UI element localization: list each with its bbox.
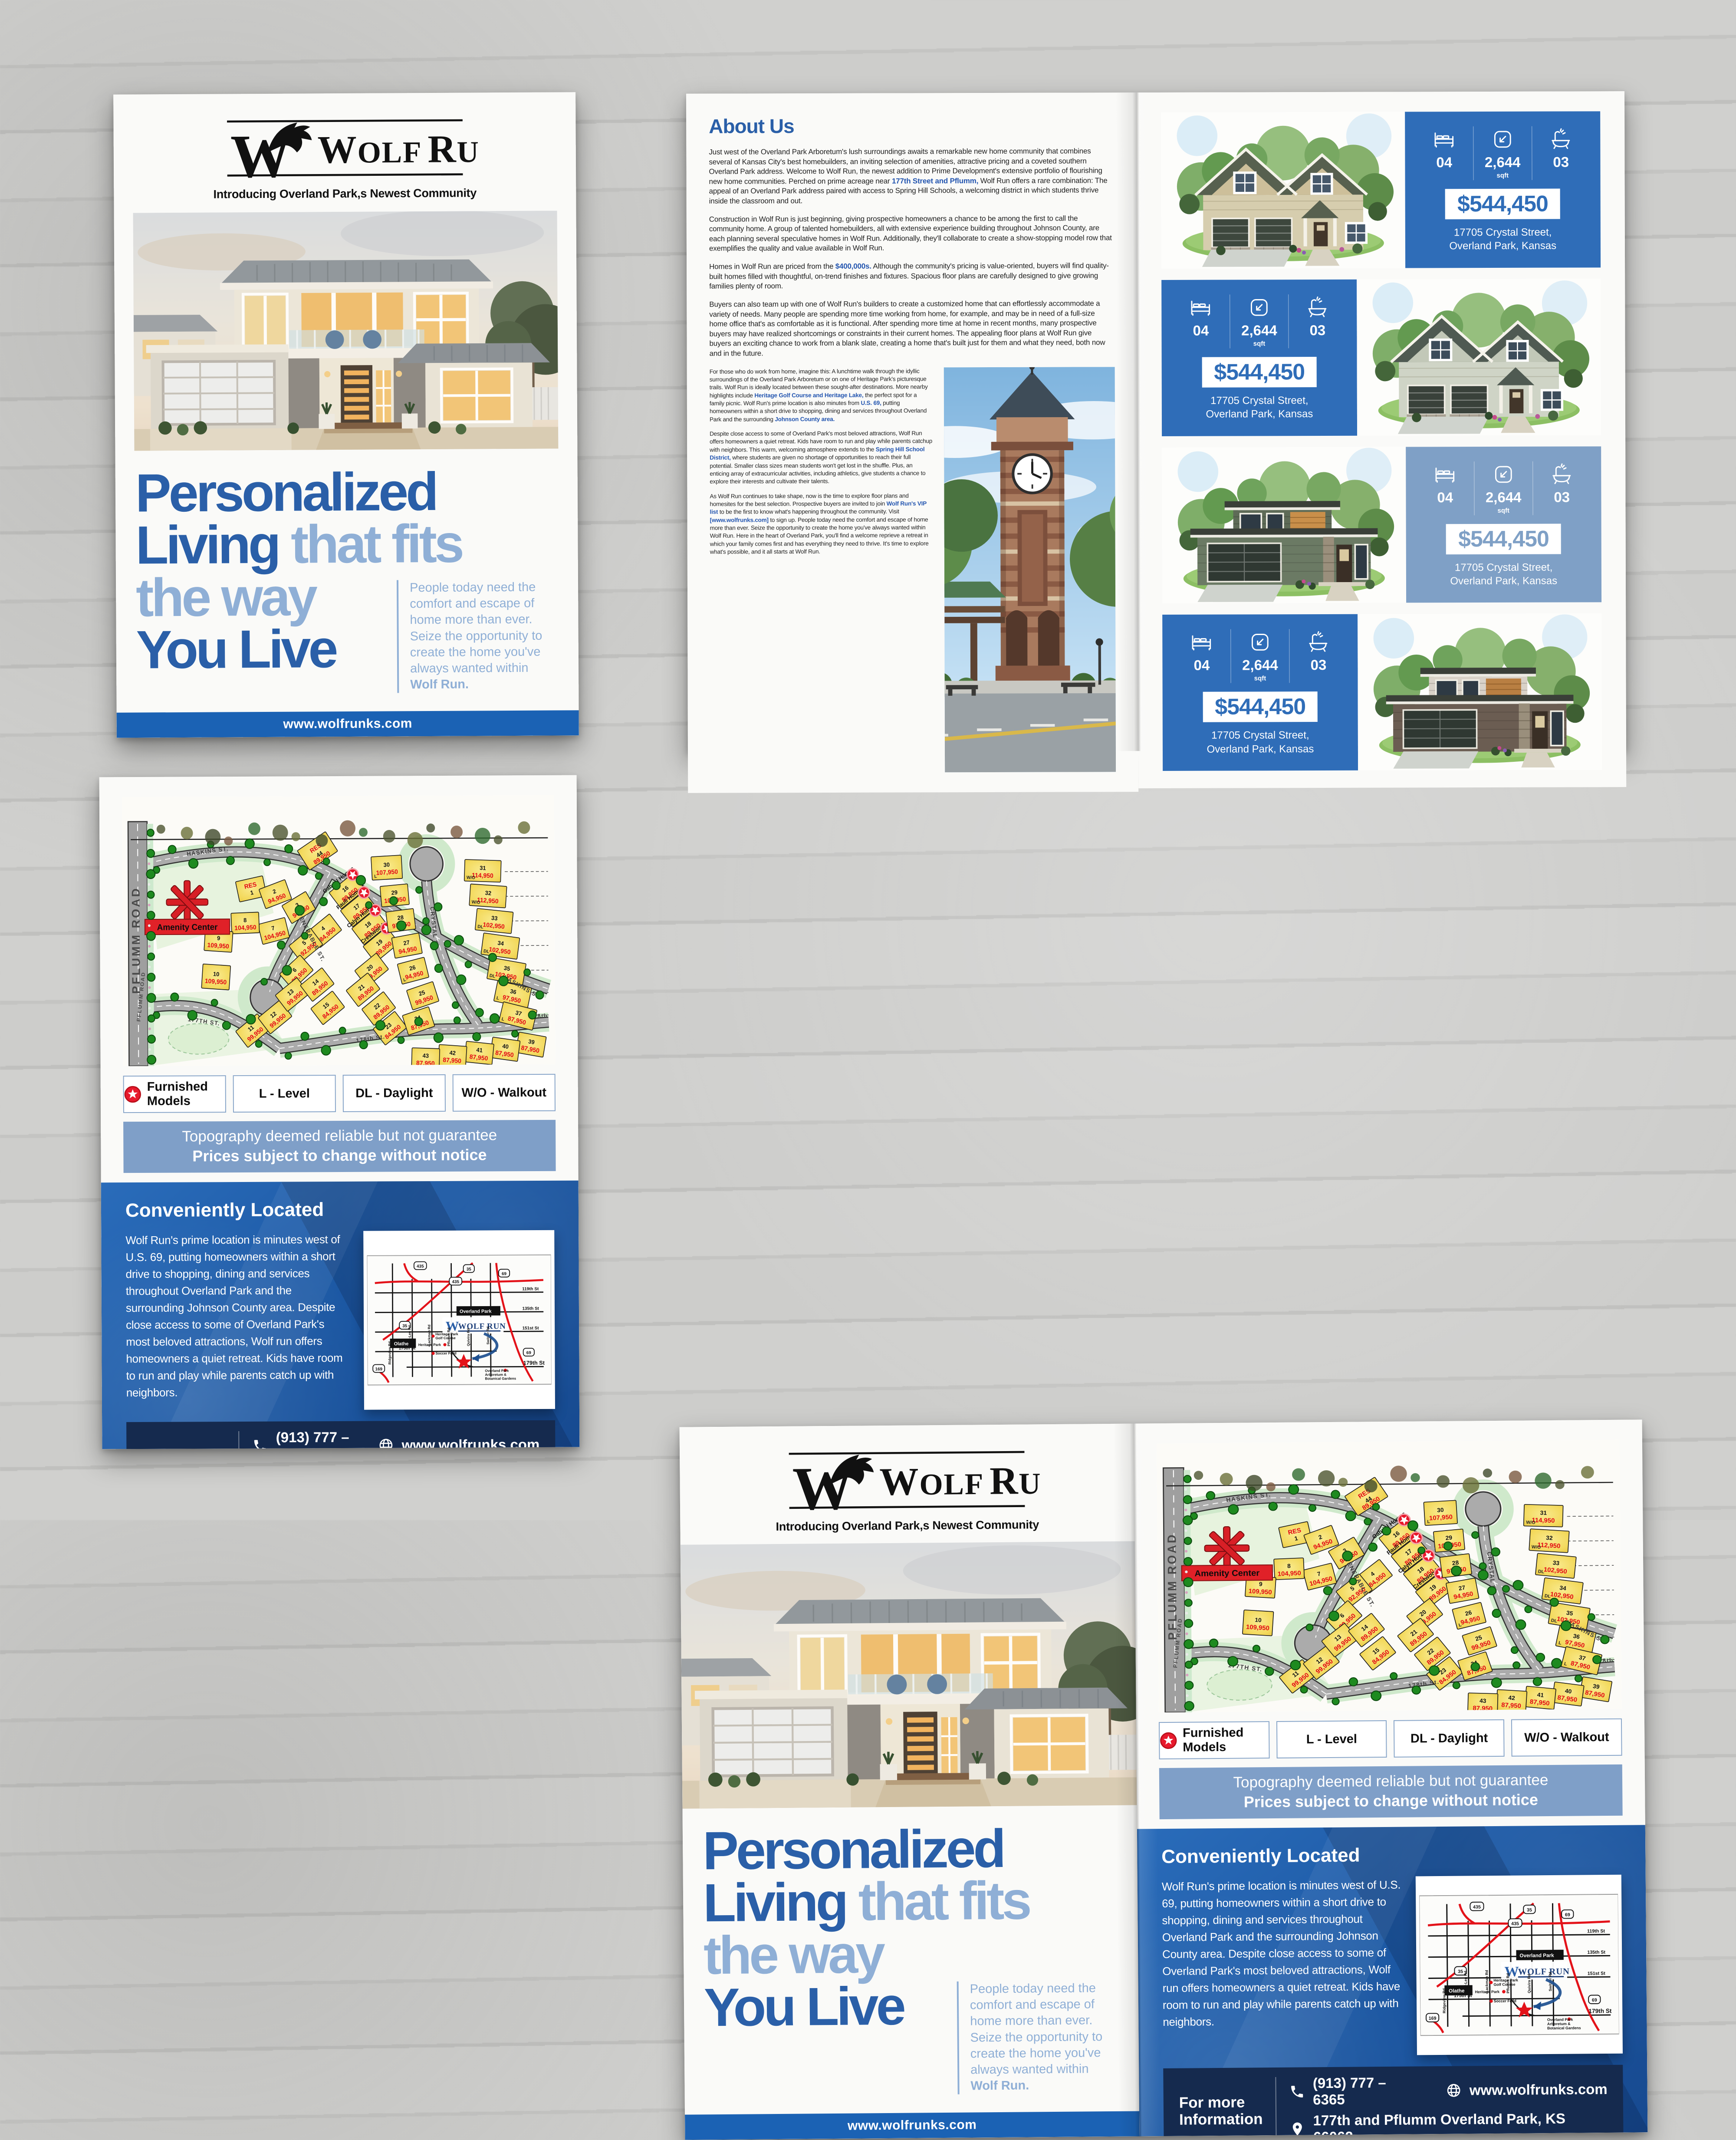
tree-icon [1555, 1480, 1565, 1489]
tree-icon [1575, 1675, 1582, 1682]
conveniently-located-section: Conveniently Located Wolf Run's prime lo… [1137, 1825, 1648, 2136]
svg-text:DL: DL [1551, 1618, 1558, 1624]
house-illustration [1161, 112, 1405, 268]
phone-number: (913) 777 – 6365 [1313, 2074, 1421, 2108]
about-paragraph: Homes in Wolf Run are priced from the $4… [709, 261, 1115, 291]
tree-icon [1184, 1495, 1192, 1504]
headline-line-2: Living that fits [703, 1874, 1118, 1929]
map-lot: 34102,950DL [1542, 1578, 1583, 1604]
tree-icon [223, 1021, 230, 1030]
tree-icon [524, 969, 530, 976]
shrub-icon [1184, 1529, 1187, 1532]
sqft-icon [1491, 128, 1514, 151]
svg-text:9: 9 [217, 935, 220, 942]
located-title: Conveniently Located [1161, 1843, 1621, 1868]
legend-item: DL - Daylight [343, 1074, 446, 1112]
tree-icon [452, 1002, 459, 1009]
shrub-icon [148, 842, 150, 844]
tree-icon [1329, 1611, 1339, 1621]
tree-icon [246, 1014, 255, 1024]
legend-item: L - Level [233, 1075, 336, 1113]
tree-icon [434, 1033, 443, 1042]
brochure-site-map-page: RES1294,950394,950484,950592,950689,9507… [99, 775, 580, 1449]
tree-icon [423, 918, 429, 925]
map-lot: 4287,950 [1496, 1689, 1527, 1712]
svg-text:40: 40 [1565, 1688, 1572, 1695]
tree-icon [398, 1037, 404, 1044]
tree-icon [1290, 1660, 1300, 1670]
svg-text:10: 10 [1255, 1617, 1262, 1623]
listing-card: 04 2,644sqft 03 $544,450 17705 Crystal S… [1161, 111, 1601, 268]
location-minimap [1415, 1875, 1623, 2055]
headline-line-1: Personalized [703, 1822, 1118, 1877]
tree-icon [416, 886, 422, 893]
shrub-icon [1185, 1570, 1187, 1573]
tree-icon [390, 897, 398, 905]
tree-icon [147, 932, 155, 941]
tree-icon [147, 993, 156, 1002]
tree-icon [147, 1055, 156, 1064]
house-illustration [1358, 614, 1602, 770]
site-plan-map: RES1294,950394,950484,950592,950689,9507… [1157, 1440, 1622, 1712]
tree-icon [211, 999, 218, 1006]
shrub-icon [1185, 1550, 1187, 1552]
tree-icon [1184, 1475, 1191, 1483]
svg-text:DL: DL [477, 924, 483, 930]
tree-icon [529, 1011, 536, 1019]
sqft-stat: 2,644sqft [1473, 126, 1532, 180]
tree-icon [1185, 1599, 1192, 1607]
map-lot: 3987,950 [516, 1032, 546, 1057]
tree-icon [359, 828, 368, 837]
svg-text:87,950: 87,950 [443, 1057, 462, 1065]
headline-line-3: the way [704, 1926, 1118, 1982]
tree-icon [1265, 1667, 1274, 1676]
site-plan-map: RES1294,950394,950484,950592,950689,9507… [122, 795, 556, 1066]
map-lot: 4187,950 [464, 1041, 494, 1065]
tree-icon [1306, 1624, 1313, 1631]
svg-text:109,950: 109,950 [1248, 1588, 1272, 1596]
tree-icon [1408, 1521, 1418, 1530]
tree-icon [1492, 1678, 1502, 1687]
cover-blurb: People today need the comfort and escape… [957, 1980, 1117, 2094]
shrub-icon [1186, 1674, 1188, 1676]
map-lot: 32112,950W/O [1529, 1529, 1569, 1553]
tree-icon [1309, 1505, 1316, 1511]
tree-icon [536, 991, 543, 999]
svg-text:33: 33 [1552, 1560, 1560, 1567]
globe-icon [1446, 2083, 1462, 2098]
tree-icon [376, 1021, 385, 1030]
map-lot: 10109,950 [201, 964, 230, 990]
tree-icon [1410, 1473, 1420, 1482]
tree-icon [1513, 1580, 1523, 1590]
tree-icon [1269, 1502, 1277, 1511]
baths-stat: 03 [1289, 629, 1348, 683]
tree-icon [518, 821, 530, 834]
tree-icon [1364, 1480, 1378, 1492]
headline-line-2: Living that fits [135, 517, 558, 572]
tree-icon [323, 858, 330, 865]
tree-icon [277, 941, 285, 949]
tree-icon [316, 872, 322, 879]
tree-icon [1184, 1557, 1192, 1566]
svg-text:39: 39 [528, 1038, 535, 1046]
tree-icon [298, 866, 307, 875]
tree-icon [473, 1033, 480, 1041]
svg-text:43: 43 [422, 1052, 429, 1059]
legend-item: L - Level [1276, 1720, 1387, 1758]
tree-icon [1289, 1485, 1299, 1494]
shrub-icon [148, 883, 150, 886]
brochure-inside-spread: About Us Just west of the Overland Park … [686, 91, 1626, 752]
info-label: For moreInformation [1179, 2094, 1263, 2128]
home-listings-page: 04 2,644sqft 03 $544,450 17705 Crystal S… [1137, 91, 1626, 788]
map-lot: 31114,950W/O [1524, 1505, 1563, 1527]
svg-text:9: 9 [1259, 1581, 1263, 1587]
svg-text:30: 30 [383, 861, 390, 868]
tree-icon [1184, 1620, 1193, 1628]
price-badge: $544,450 [1202, 357, 1317, 388]
map-lot: 4387,950 [411, 1048, 440, 1066]
tree-icon [426, 823, 435, 833]
tree-icon [1511, 1646, 1518, 1653]
tree-icon [1429, 1666, 1439, 1675]
tree-icon [1513, 1662, 1520, 1669]
website: www.wolfrunks.com [401, 1436, 539, 1449]
tree-icon [189, 859, 198, 868]
tree-icon [431, 942, 438, 950]
tree-icon [475, 828, 490, 844]
tree-icon [1184, 1577, 1193, 1587]
svg-text:34: 34 [1559, 1584, 1567, 1592]
location-minimap [363, 1230, 555, 1410]
tree-icon [1552, 1659, 1562, 1668]
tree-icon [1453, 1682, 1460, 1689]
map-lot: 33102,950DL [475, 909, 513, 934]
tree-icon [147, 973, 155, 981]
svg-text:10: 10 [213, 971, 220, 978]
website-bar: www.wolfrunks.com [685, 2111, 1139, 2140]
beds-stat: 04 [1416, 461, 1474, 515]
tree-icon [171, 993, 178, 1001]
tree-icon [147, 911, 155, 919]
svg-text:31: 31 [480, 865, 486, 872]
shrub-icon [1184, 1488, 1187, 1491]
tree-icon [282, 965, 291, 975]
sqft-icon [1248, 296, 1270, 319]
about-paragraph: Despite close access to some of Overland… [710, 429, 933, 486]
svg-text:27: 27 [403, 939, 410, 947]
about-paragraph: Buyers can also team up with one of Wolf… [709, 299, 1115, 359]
svg-text:32: 32 [1546, 1534, 1553, 1541]
tree-icon [1463, 1477, 1480, 1494]
tree-icon [285, 1053, 292, 1060]
conveniently-located-section: Conveniently Located Wolf Run's prime lo… [101, 1181, 580, 1449]
tree-icon [499, 976, 508, 986]
tree-icon [148, 891, 155, 899]
clock-tower-photo [944, 367, 1116, 772]
svg-text:31: 31 [1540, 1510, 1547, 1516]
listing-card: 04 2,644sqft 03 $544,450 17705 Crystal S… [1162, 614, 1602, 771]
tree-icon [408, 832, 423, 848]
svg-text:41: 41 [476, 1047, 483, 1054]
furnished-model-star-icon [1160, 1732, 1177, 1749]
disclaimer-bar: Topography deemed reliable but not guara… [1159, 1765, 1623, 1819]
tree-icon [434, 903, 442, 911]
map-lot: 30107,950L [1424, 1500, 1457, 1525]
tree-icon [1593, 1656, 1601, 1664]
shrub-icon [148, 1048, 151, 1051]
tree-icon [1349, 1578, 1356, 1585]
tree-icon [1349, 1678, 1358, 1686]
tree-icon [489, 953, 496, 961]
svg-text:41: 41 [1537, 1692, 1544, 1699]
tree-icon [1185, 1661, 1193, 1669]
tree-icon [1342, 1551, 1352, 1561]
wolf-run-logo [772, 1446, 1042, 1517]
located-body: Wolf Run's prime location is minutes wes… [125, 1231, 349, 1411]
tree-icon [1206, 1491, 1215, 1500]
tree-icon [435, 964, 443, 972]
website-bar: www.wolfrunks.com [117, 710, 579, 738]
pin-icon [1290, 2121, 1305, 2136]
plat-map-svg: RES1294,950394,950484,950592,950689,9507… [1157, 1440, 1622, 1712]
tree-icon [188, 1011, 197, 1020]
shrub-icon [1185, 1612, 1188, 1614]
bath-icon [1549, 128, 1572, 151]
sqft-icon [1492, 463, 1515, 486]
svg-text:W/O: W/O [1526, 1520, 1535, 1525]
cover-house-photo [681, 1541, 1137, 1809]
svg-text:32: 32 [485, 889, 491, 896]
map-lot: 4287,950 [438, 1044, 467, 1066]
located-body: Wolf Run's prime location is minutes wes… [1162, 1877, 1402, 2057]
svg-text:87,950: 87,950 [1501, 1702, 1522, 1709]
located-title: Conveniently Located [125, 1198, 554, 1221]
price-badge: $544,450 [1445, 189, 1560, 220]
divider [239, 1431, 240, 1449]
tree-icon [1437, 1475, 1450, 1488]
tree-icon [1472, 1531, 1479, 1538]
cover-tagline: Introducing Overland Park,s Newest Commu… [114, 186, 576, 202]
tree-icon [321, 1046, 330, 1055]
tree-icon [148, 1035, 155, 1044]
phone-icon [253, 1438, 268, 1449]
tree-icon [365, 902, 372, 909]
tree-icon [1228, 1505, 1238, 1514]
legend-item: W/O - Walkout [453, 1074, 556, 1112]
beds-stat: 04 [1173, 629, 1231, 683]
shrub-icon [148, 945, 151, 948]
tree-icon [1331, 1490, 1340, 1498]
tree-icon [292, 832, 300, 841]
tree-icon [1372, 1504, 1379, 1511]
about-paragraph: For those who do work from home, imagine… [710, 367, 933, 424]
svg-text:87,950: 87,950 [416, 1060, 435, 1066]
tree-icon [1324, 1587, 1332, 1595]
cover-house-photo [133, 211, 559, 451]
beds-stat: 04 [1415, 126, 1473, 180]
tree-icon [1581, 1466, 1594, 1478]
map-lot: 8104,950 [231, 912, 260, 934]
tree-icon [245, 839, 254, 849]
tree-icon [168, 846, 176, 854]
tree-icon [1228, 1656, 1238, 1666]
shrub-icon [148, 1027, 151, 1030]
tree-icon [454, 1017, 460, 1024]
listing-address: 17705 Crystal Street,Overland Park, Kans… [1207, 728, 1314, 756]
about-title: About Us [709, 113, 1114, 138]
tree-icon [1535, 1472, 1552, 1489]
tree-icon [1345, 1511, 1355, 1521]
tree-icon [1479, 1563, 1486, 1570]
price-badge: $544,450 [1203, 691, 1318, 722]
tree-icon [1292, 1468, 1305, 1481]
bath-icon [1307, 631, 1330, 653]
sqft-stat: 2,644sqft [1230, 629, 1289, 683]
tree-icon [256, 1040, 262, 1047]
tree-icon [148, 1015, 155, 1022]
front-cover-page: Introducing Overland Park,s Newest Commu… [680, 1424, 1140, 2140]
legend-item: W/O - Walkout [1511, 1719, 1622, 1757]
tree-icon [147, 849, 155, 858]
svg-text:87,950: 87,950 [1473, 1705, 1493, 1712]
tree-icon [383, 830, 395, 843]
shrub-icon [1185, 1591, 1187, 1594]
tree-icon [494, 835, 503, 844]
tree-icon [1184, 1640, 1193, 1649]
listing-address: 17705 Crystal Street,Overland Park, Kans… [1450, 560, 1557, 588]
tree-icon [1210, 1639, 1218, 1647]
tree-icon [1509, 1471, 1522, 1483]
svg-text:27: 27 [1458, 1584, 1466, 1592]
tree-icon [319, 898, 327, 906]
tree-icon [454, 935, 464, 945]
shrub-icon [148, 1007, 151, 1009]
tree-icon [1471, 1663, 1480, 1671]
tree-icon [1588, 1613, 1595, 1620]
svg-text:29: 29 [1445, 1534, 1453, 1541]
headline-line-1: Personalized [135, 465, 558, 519]
website: www.wolfrunks.com [1470, 2081, 1608, 2098]
svg-text:104,950: 104,950 [1277, 1570, 1301, 1578]
tree-icon [1601, 1636, 1609, 1644]
tree-icon [302, 932, 308, 939]
map-lot: 4087,950 [1552, 1682, 1584, 1706]
tree-icon [1220, 1473, 1233, 1485]
legend-item: Furnished Models [1159, 1721, 1269, 1759]
disclaimer-bar: Topography deemed reliable but not guara… [123, 1120, 556, 1173]
svg-text:107,950: 107,950 [1429, 1514, 1453, 1522]
baths-stat: 03 [1288, 294, 1347, 348]
svg-text:8: 8 [243, 917, 247, 924]
tree-icon [1478, 1570, 1488, 1580]
furnished-model-star-icon [124, 1086, 141, 1103]
street-address: 177th and Pflumm Overland Park, KS 66062 [1313, 2110, 1608, 2136]
tree-icon [1533, 1677, 1542, 1686]
tree-icon [1368, 1543, 1377, 1551]
tree-icon [181, 827, 193, 840]
tree-icon [1185, 1681, 1193, 1689]
shrub-icon [148, 863, 150, 865]
svg-text:34: 34 [497, 939, 505, 947]
tree-icon [1525, 1606, 1532, 1613]
baths-stat: 03 [1532, 126, 1590, 180]
contact-info-bar: For moreInformation (913) 777 – 6365 www… [1163, 2065, 1624, 2137]
tree-icon [316, 834, 328, 847]
plat-map-svg: RES1294,950394,950484,950592,950689,9507… [122, 795, 556, 1066]
svg-text:W/O: W/O [471, 900, 480, 905]
listing-address: 17705 Crystal Street,Overland Park, Kans… [1206, 394, 1313, 421]
tree-icon [301, 1032, 309, 1040]
tree-icon [227, 856, 234, 865]
baths-stat: 03 [1532, 461, 1591, 515]
svg-text:36: 36 [510, 988, 517, 996]
tree-icon [1194, 1471, 1203, 1480]
map-lot: 34102,950DL [481, 933, 519, 959]
tree-icon [1364, 1518, 1371, 1525]
tree-icon [1371, 1691, 1381, 1700]
about-us-page: About Us Just west of the Overland Park … [686, 92, 1138, 793]
tree-icon [340, 820, 355, 836]
map-lot: 30107,950L [371, 855, 403, 880]
svg-text:29: 29 [391, 889, 398, 896]
sqft-icon [1249, 631, 1271, 654]
tree-icon [1516, 1620, 1526, 1630]
svg-text:30: 30 [1437, 1507, 1444, 1514]
site-map-page: RES1294,950394,950484,950592,950689,9507… [1134, 1419, 1647, 2136]
svg-text:28: 28 [1452, 1559, 1460, 1567]
svg-text:35: 35 [1566, 1610, 1574, 1617]
contact-info-bar: For moreInformation (913) 777 – 6365 www… [126, 1420, 556, 1449]
tree-icon [512, 1030, 518, 1037]
tree-icon [1487, 1587, 1496, 1595]
tree-icon [1561, 1621, 1571, 1630]
tree-icon [1382, 1527, 1391, 1535]
cover-blurb: People today need the comfort and escape… [397, 579, 556, 693]
map-lot: 4187,950 [1524, 1686, 1556, 1709]
shrub-icon [148, 924, 151, 927]
listing-card: 04 2,644sqft 03 $544,450 17705 Crystal S… [1161, 279, 1601, 436]
phone-number: (913) 777 – 6365 [276, 1429, 356, 1449]
svg-text:104,950: 104,950 [234, 924, 256, 932]
svg-text:42: 42 [1508, 1695, 1516, 1702]
svg-text:W/O: W/O [1531, 1544, 1541, 1550]
shrub-icon [1184, 1508, 1187, 1511]
brochure-front-cover-page: Introducing Overland Park,s Newest Commu… [113, 92, 579, 738]
svg-text:DL: DL [1538, 1569, 1545, 1574]
svg-text:DL: DL [489, 973, 496, 979]
tree-icon [356, 876, 365, 885]
divider [1276, 2077, 1277, 2136]
house-illustration [1162, 447, 1406, 603]
cover-headline: Personalized Living that fits the way Yo… [682, 1805, 1139, 2107]
tree-icon [273, 825, 288, 841]
svg-text:W/O: W/O [467, 875, 475, 880]
tree-icon [1253, 1645, 1260, 1652]
svg-text:42: 42 [449, 1049, 456, 1056]
tree-icon [1503, 1585, 1509, 1592]
tree-icon [332, 882, 340, 890]
tree-icon [248, 823, 260, 835]
about-paragraph: Construction in Wolf Run is just beginni… [709, 214, 1115, 254]
svg-text:L: L [374, 874, 377, 879]
bed-icon [1190, 631, 1213, 654]
shrub-icon [1186, 1653, 1188, 1656]
tree-icon [415, 1017, 423, 1026]
svg-text:109,950: 109,950 [207, 942, 229, 951]
